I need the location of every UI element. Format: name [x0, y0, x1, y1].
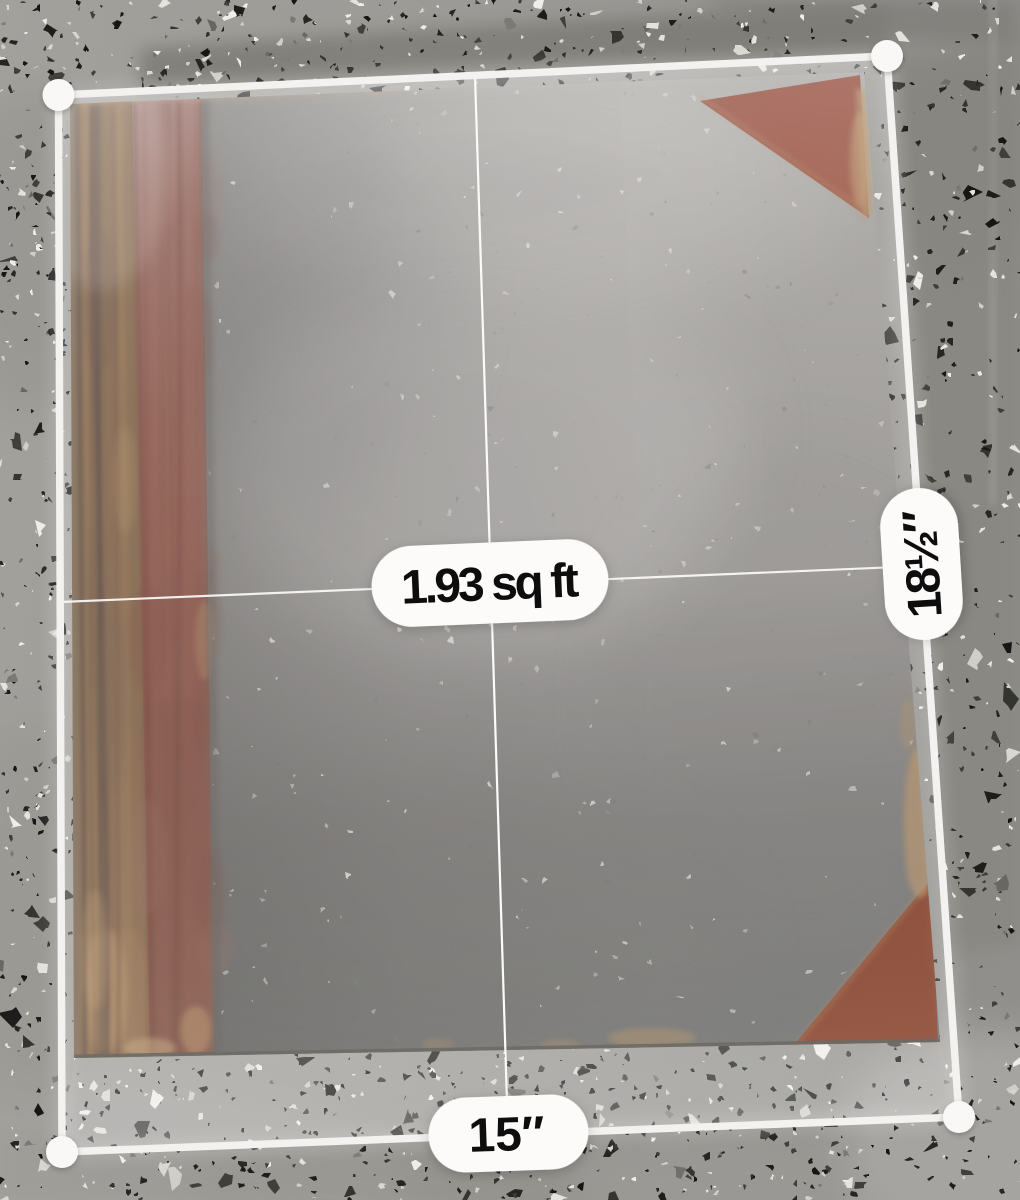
svg-text:15″: 15″ — [468, 1107, 546, 1163]
svg-text:1.93 sq ft: 1.93 sq ft — [400, 554, 580, 614]
svg-text:18½″: 18½″ — [893, 508, 952, 619]
